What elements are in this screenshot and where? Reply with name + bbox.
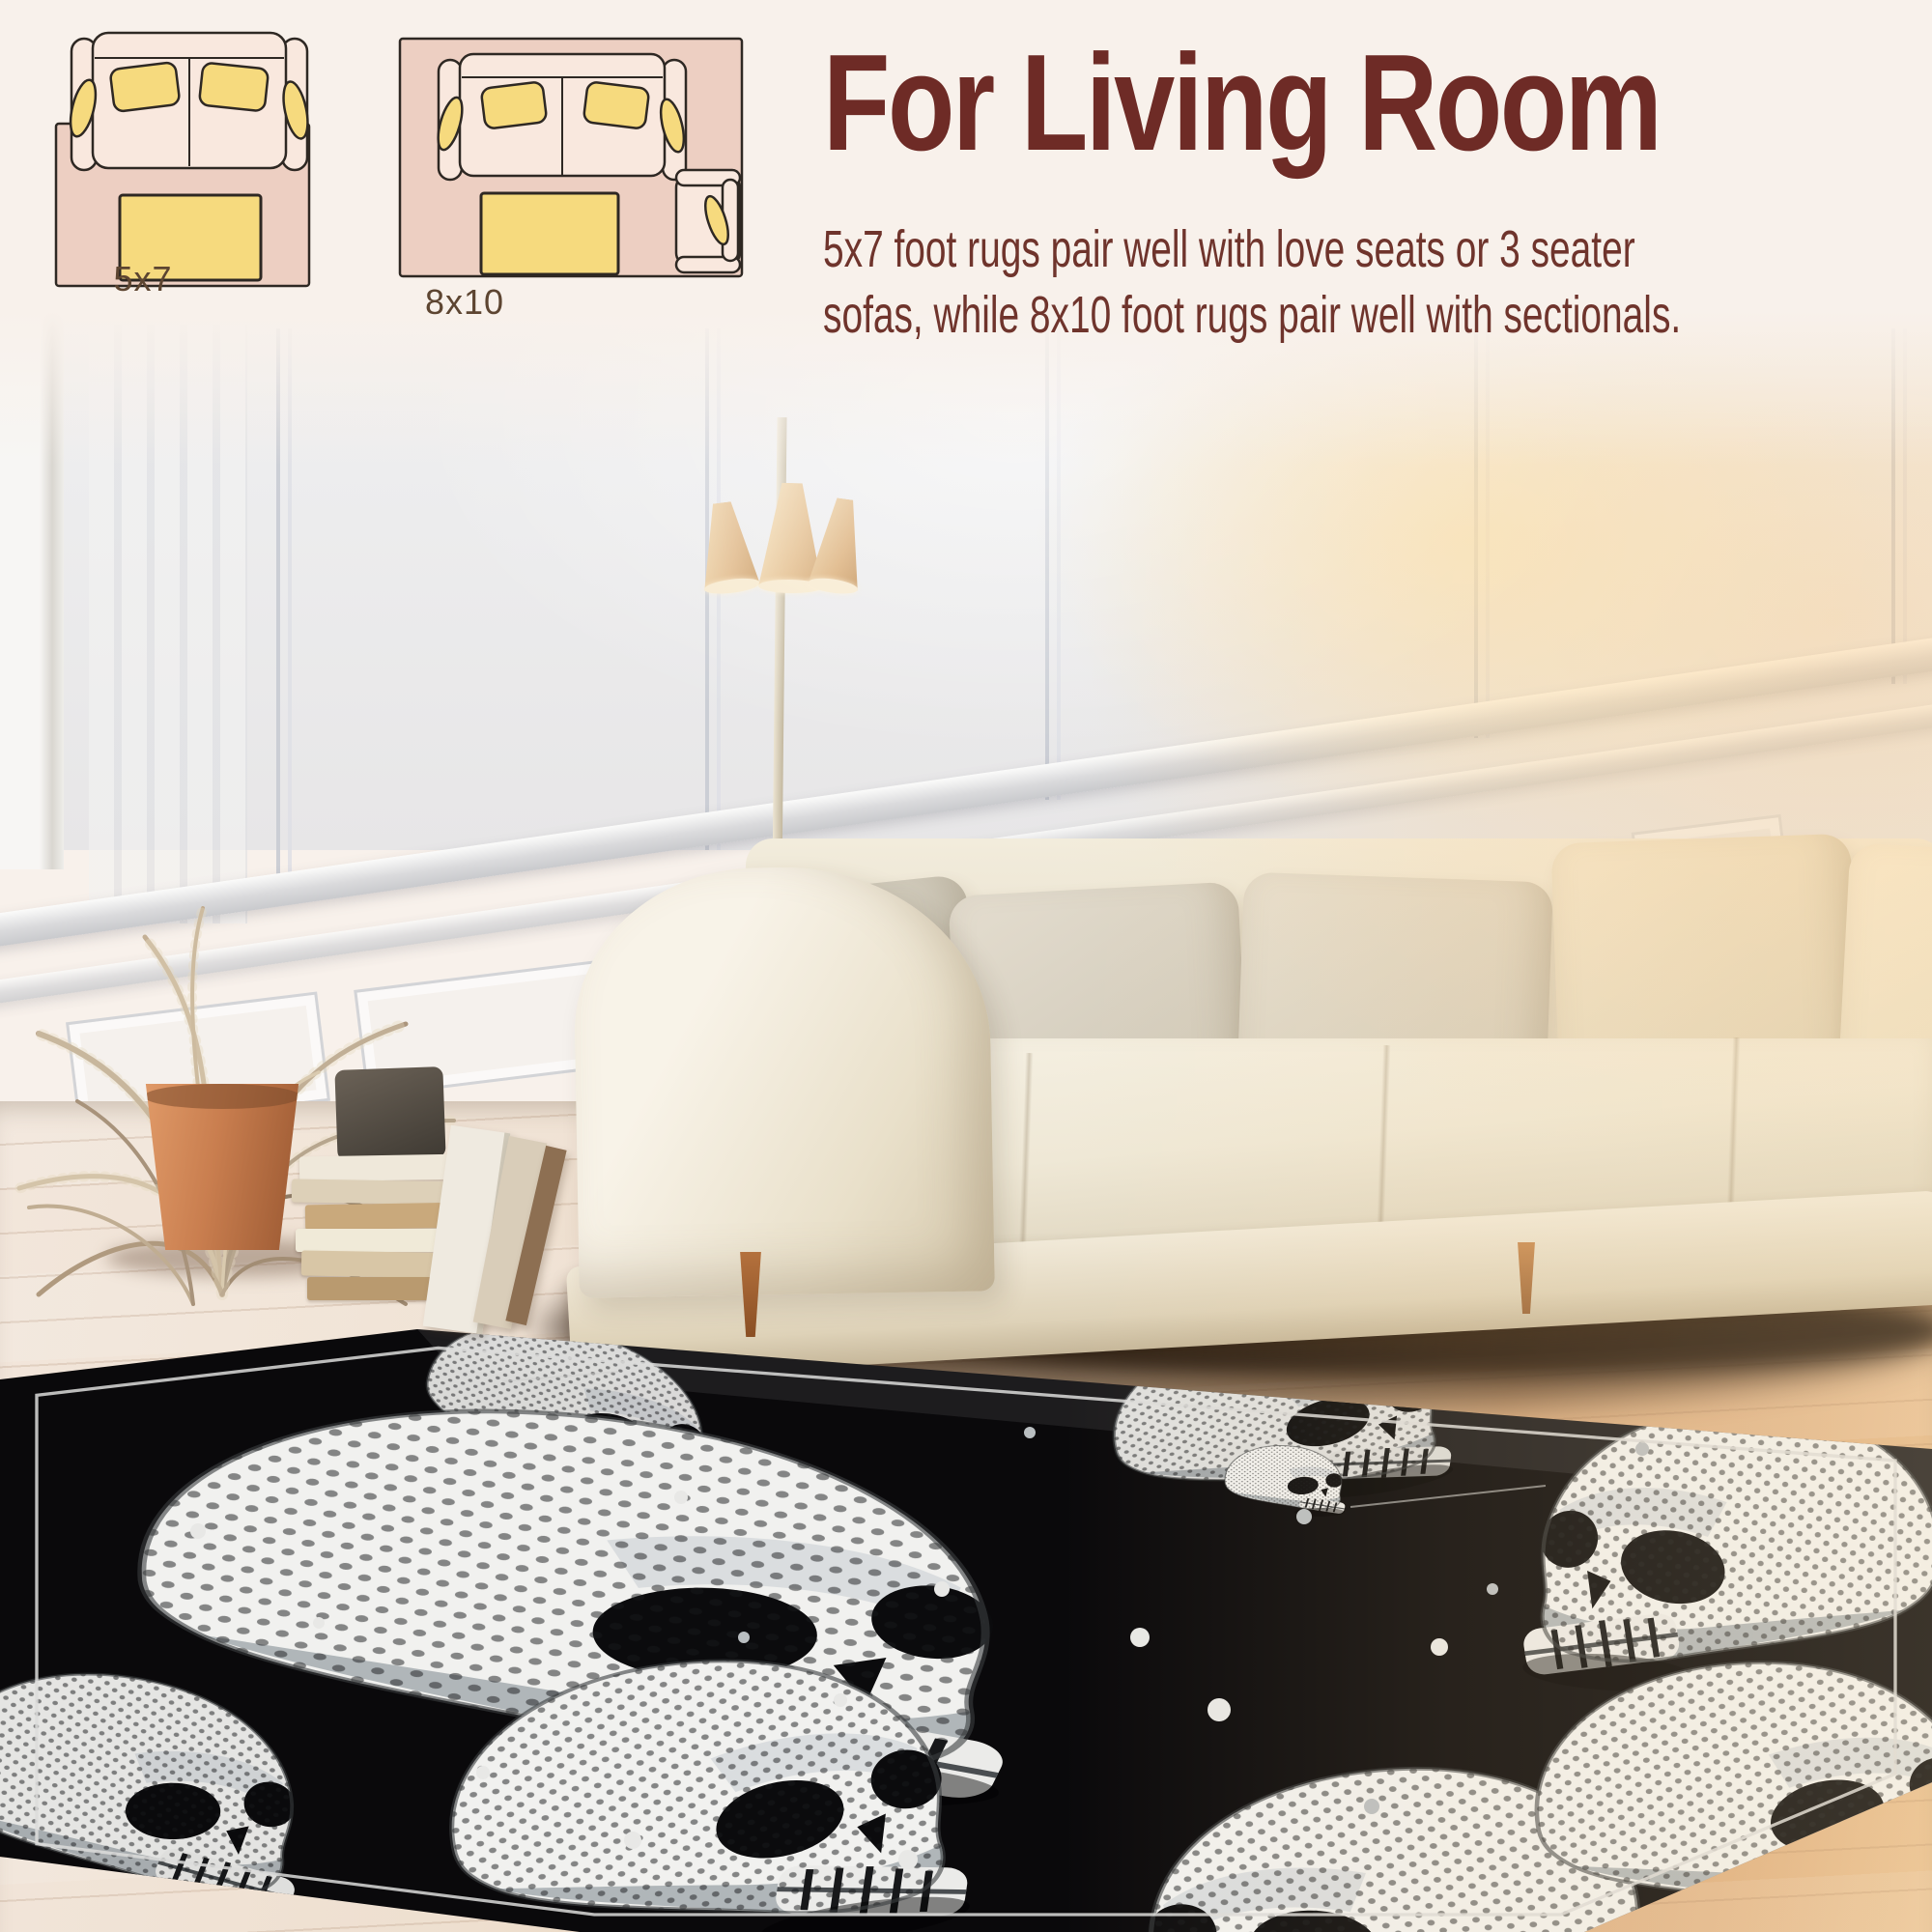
description-text: 5x7 foot rugs pair well with love seats … <box>823 216 1681 348</box>
description-line-1: 5x7 foot rugs pair well with love seats … <box>823 216 1681 282</box>
rug-diagram-5x7 <box>44 15 334 296</box>
page-title: For Living Room <box>823 35 1660 172</box>
diagram-pillow <box>110 62 181 112</box>
decor-object <box>334 1066 445 1161</box>
diagram-loveseat <box>66 33 312 170</box>
rug-size-label-5x7: 5x7 <box>85 259 201 299</box>
diagram-pillow <box>583 81 650 128</box>
diagram-coffee-table <box>481 193 618 274</box>
product-image: 5x7 8x10 For Living Room 5x7 foot rugs p… <box>0 0 1932 1932</box>
diagram-pillow <box>481 81 548 128</box>
diagram-armchair <box>676 170 740 272</box>
rug-diagram-8x10 <box>386 23 757 290</box>
diagram-sofa <box>434 54 689 180</box>
book <box>299 1154 464 1182</box>
rug-size-label-8x10: 8x10 <box>402 282 527 323</box>
diagram-pillow <box>199 63 269 112</box>
description-line-2: sofas, while 8x10 foot rugs pair well wi… <box>823 282 1681 348</box>
